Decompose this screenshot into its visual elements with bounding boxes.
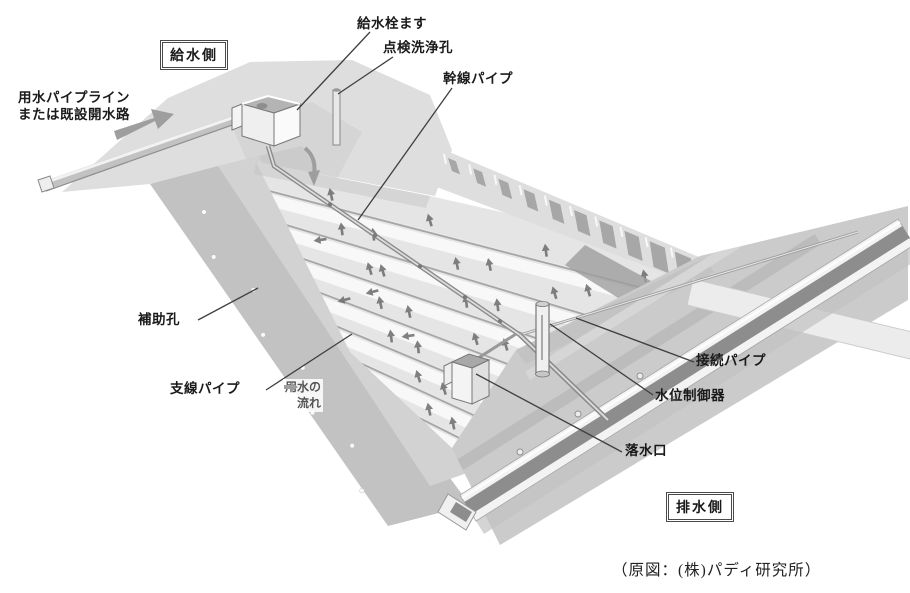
label-branch-pipe: 支線パイプ: [170, 381, 240, 398]
label-inspection-hole: 点検洗浄孔: [383, 40, 453, 57]
label-main-pipe: 幹線パイプ: [443, 71, 513, 88]
water-level-controller-graphic: [536, 301, 550, 377]
drain-inlet-hole: [575, 411, 581, 417]
water-flow-arrow-icon: [283, 381, 299, 395]
irrigation-diagram-page: 給水側 用水パイプライン または既設開水路 給水栓ます 点検洗浄孔 幹線パイプ …: [0, 0, 910, 593]
label-water-level-controller: 水位制御器: [655, 388, 725, 405]
label-supply-pipeline-line1: 用水パイプライン: [18, 90, 130, 105]
paddy-irrigation-illustration: [0, 0, 910, 593]
label-supply-pipeline: 用水パイプライン または既設開水路: [18, 90, 130, 124]
drain-inlet-hole: [517, 449, 523, 455]
drain-inlet-hole: [637, 373, 643, 379]
inspection-riser: [333, 88, 340, 145]
label-supply-pipeline-line2: または既設開水路: [18, 107, 130, 122]
figure-credit: （原図：(株)パディ研究所）: [612, 558, 821, 580]
label-drop-outlet: 落水口: [625, 443, 667, 460]
valve-inlet-port: [257, 103, 268, 109]
label-water-flow: 用水の 流れ: [283, 379, 323, 412]
label-auxiliary-hole: 補助孔: [138, 312, 180, 329]
label-connection-pipe: 接続パイプ: [696, 353, 766, 370]
drain-side-badge: 排水側: [666, 492, 734, 522]
supply-side-badge: 給水側: [160, 40, 228, 70]
label-supply-valve-box: 給水栓ます: [357, 16, 427, 33]
label-water-flow-line2: 流れ: [285, 396, 321, 412]
